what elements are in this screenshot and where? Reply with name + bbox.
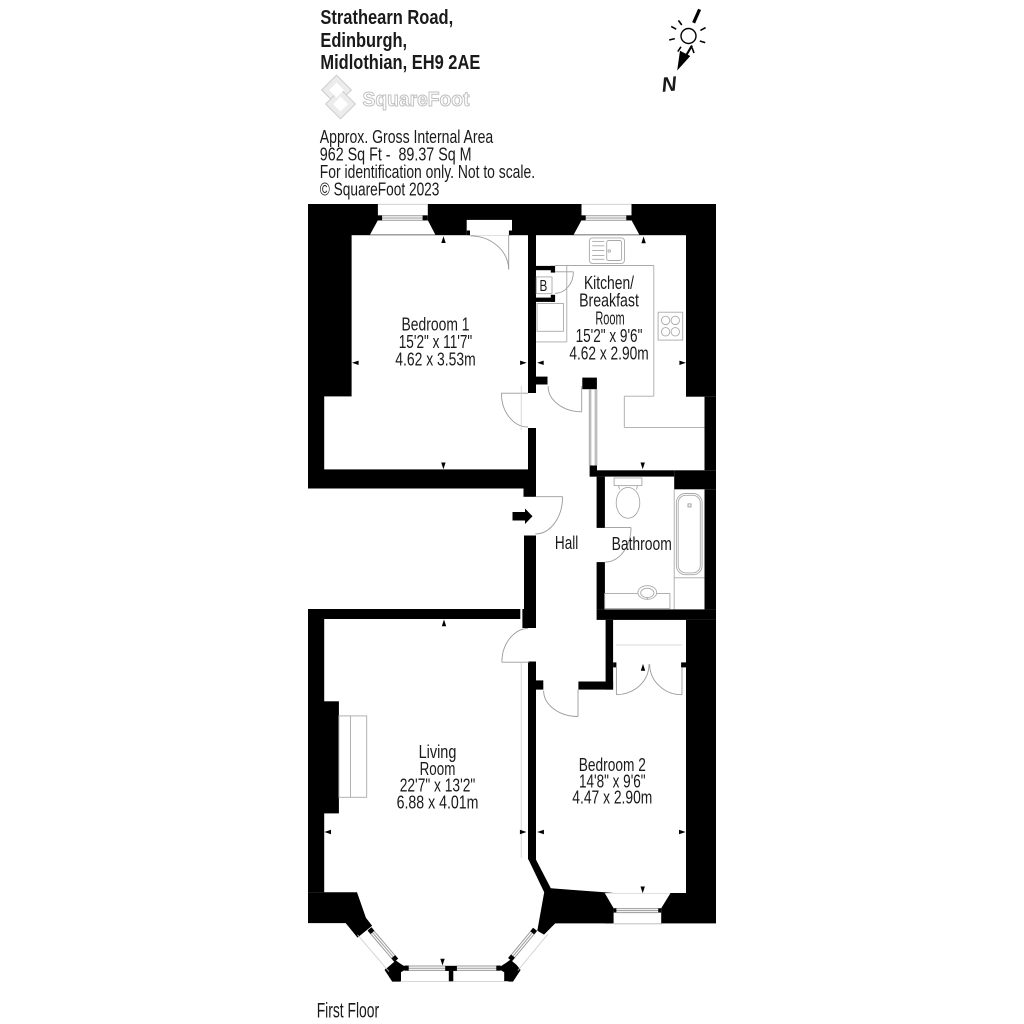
svg-text:4.62 x 3.53m: 4.62 x 3.53m bbox=[395, 350, 475, 370]
svg-text:First Floor: First Floor bbox=[317, 999, 379, 1023]
svg-text:© SquareFoot 2023: © SquareFoot 2023 bbox=[320, 180, 440, 200]
svg-text:6.88 x 4.01m: 6.88 x 4.01m bbox=[397, 792, 479, 812]
svg-text:Edinburgh,: Edinburgh, bbox=[320, 30, 407, 52]
svg-text:Strathearn Road,: Strathearn Road, bbox=[320, 7, 453, 29]
svg-text:4.47 x 2.90m: 4.47 x 2.90m bbox=[572, 788, 652, 808]
svg-text:Hall: Hall bbox=[555, 533, 578, 553]
svg-text:SquareFoot: SquareFoot bbox=[363, 88, 470, 111]
svg-text:Bathroom: Bathroom bbox=[612, 534, 672, 554]
svg-text:Midlothian, EH9 2AE: Midlothian, EH9 2AE bbox=[320, 52, 480, 74]
svg-text:B: B bbox=[540, 278, 548, 295]
svg-text:4.62 x 2.90m: 4.62 x 2.90m bbox=[569, 344, 648, 364]
